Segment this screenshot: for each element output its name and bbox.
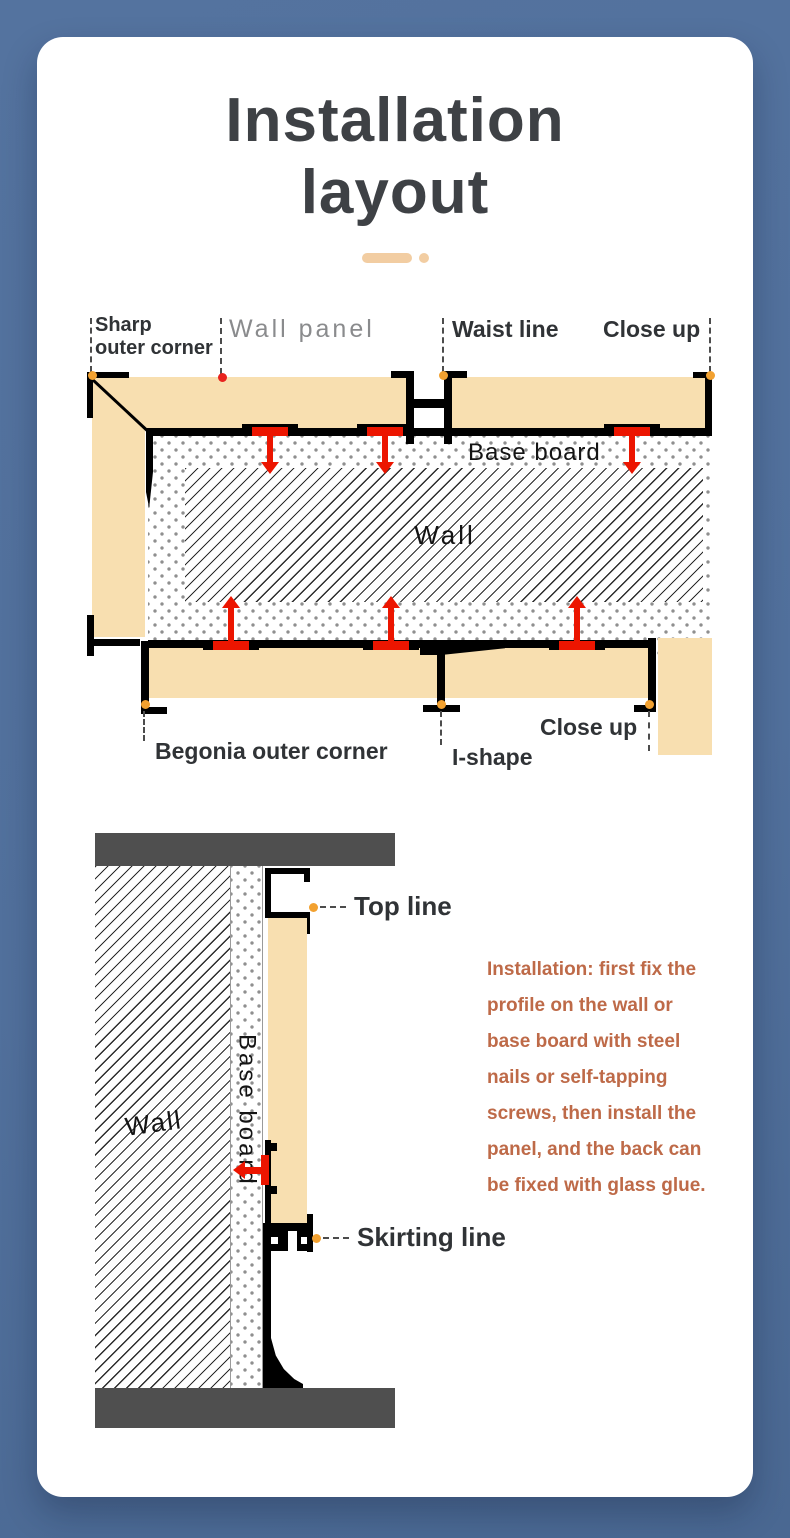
label-waist-line: Waist line (452, 316, 559, 343)
skirting-back-bar (263, 1249, 271, 1341)
title-underline-dot (419, 253, 429, 263)
marker-dot-orange (141, 700, 150, 709)
marker-dot-orange (437, 700, 446, 709)
wall-panel-bottom (148, 648, 655, 698)
wall-panel-top-right (447, 377, 707, 428)
skirting-cove-foot (263, 1338, 303, 1388)
marker-dot-orange (88, 371, 97, 380)
leader-line-sharp-corner (90, 318, 92, 372)
marker-dot-orange (312, 1234, 321, 1243)
begonia-corner-horizontal (87, 639, 140, 646)
wall-panel-column (268, 918, 307, 1223)
marker-dot-orange (645, 700, 654, 709)
label-top-line: Top line (354, 891, 452, 922)
page-background: Installation layout Sharpouter corner Wa… (0, 0, 790, 1538)
label-begonia-outer-corner: Begonia outer corner (155, 738, 388, 765)
joint-notch-top (265, 1143, 277, 1151)
leader-line-waist-line (442, 318, 444, 372)
label-wall: Wall (385, 520, 505, 551)
floor-bar (95, 1388, 395, 1428)
diagram-plan-view: Sharpouter corner Wall panel Waist line … (85, 310, 717, 790)
label-base-board: Base board (468, 439, 601, 467)
installation-instructions: Installation: first fix theprofile on th… (487, 952, 757, 1204)
marker-dot-orange (439, 371, 448, 380)
label-wall-panel: Wall panel (229, 315, 375, 344)
leader-line-begonia (143, 711, 145, 741)
marker-dot-red (218, 373, 227, 382)
waist-line-right-hook-bottom (444, 429, 467, 436)
label-close-up-bottom: Close up (540, 714, 637, 741)
marker-dot-orange (309, 903, 318, 912)
top-line-back-bar (265, 868, 271, 918)
fastener-arrow-left-icon (233, 1155, 273, 1185)
label-sharp-outer-corner: Sharpouter corner (95, 314, 213, 360)
label-close-up-top: Close up (603, 316, 700, 343)
waist-line-crossbar (414, 399, 444, 408)
label-base-board-vertical: Base board (230, 970, 263, 1250)
ceiling-bar (95, 833, 395, 866)
skirting-head-notch-left (271, 1237, 278, 1244)
leader-line-wall-panel (220, 318, 222, 374)
leader-line-close-up-bottom (648, 711, 650, 751)
leader-line-close-up-top (709, 318, 711, 372)
leader-line-skirting (323, 1237, 349, 1239)
skirting-head-slot (288, 1231, 297, 1251)
skirting-front-tail (307, 1214, 313, 1252)
leader-line-i-shape (440, 711, 442, 745)
label-skirting-line: Skirting line (357, 1222, 506, 1253)
page-title-line2: layout (37, 157, 753, 229)
close-up-top-bar (705, 372, 712, 436)
waist-line-left-hook-top (391, 371, 414, 378)
joint-notch-bottom (265, 1186, 277, 1194)
top-line-hook (304, 868, 310, 882)
page-title: Installation layout (37, 85, 753, 229)
marker-dot-orange (706, 371, 715, 380)
title-underline-ornament (362, 253, 412, 263)
label-i-shape: I-shape (452, 744, 533, 771)
wall-panel-right-column (658, 638, 712, 755)
leader-line-top-line (320, 906, 346, 908)
content-card: Installation layout Sharpouter corner Wa… (37, 37, 753, 1497)
begonia-corner-vertical (87, 615, 94, 656)
page-title-line1: Installation (37, 85, 753, 157)
wall-panel-left-column (92, 377, 145, 637)
